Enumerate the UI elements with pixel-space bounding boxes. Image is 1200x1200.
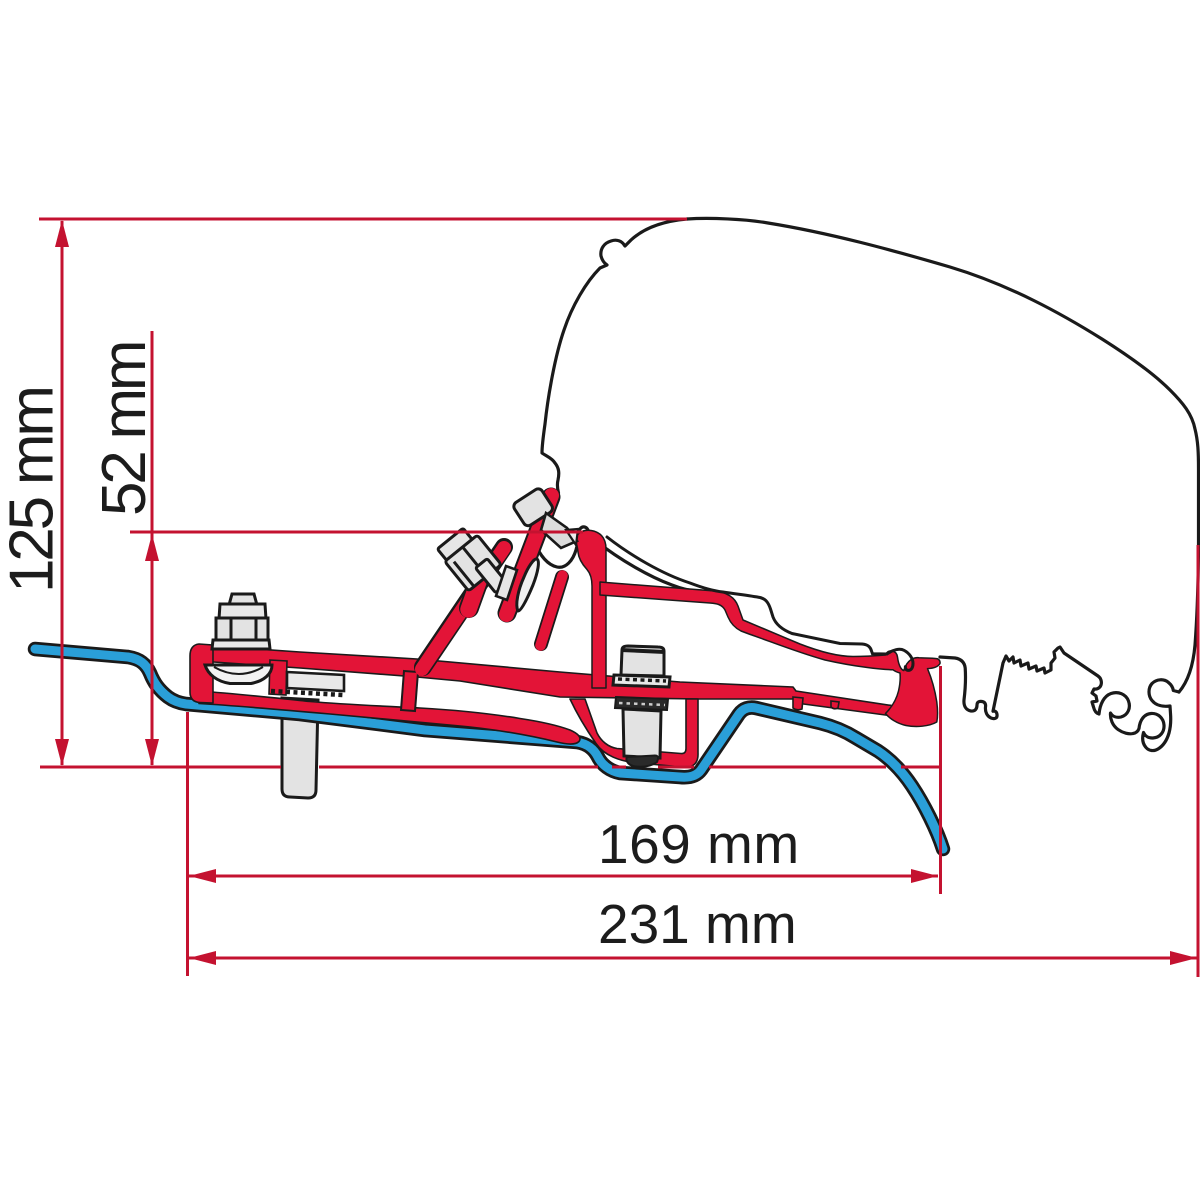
svg-text:169 mm: 169 mm <box>598 813 800 875</box>
svg-text:125 mm: 125 mm <box>0 388 67 593</box>
svg-text:52 mm: 52 mm <box>90 343 159 516</box>
svg-text:231 mm: 231 mm <box>598 893 797 955</box>
